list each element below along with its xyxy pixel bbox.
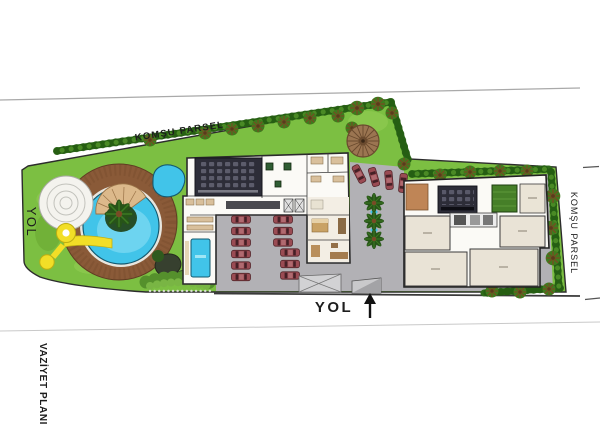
courtyard-palms [364,193,384,249]
round-terrace [39,176,93,230]
apartment-wing [308,197,349,262]
wardrobe [338,218,346,234]
parcel-dash-right-bottom [585,298,600,300]
building-cinema-room [438,186,477,213]
sofa [311,245,320,257]
label-vaziyet-plani: VAZİYET PLANI [37,343,50,425]
cinema-room [195,158,262,196]
turf-room [492,185,517,212]
label-komsu-parsel-right: KOMŞU PARSEL [569,192,579,274]
label-yol-left: YOL [24,207,39,238]
kitchen-counter [330,252,348,259]
kitchen-strip [450,213,497,227]
residential-building [404,175,549,287]
site-plan-canvas: KOMŞU PARSEL KOMŞU PARSEL YOL YOL VAZİYE… [0,0,600,429]
kids-pool [153,165,185,197]
parcel-dash-right-top [583,167,599,168]
gazebo [347,125,379,157]
sauna-room [406,184,428,210]
label-yol-bottom: YOL [315,299,353,316]
site-plan-drawing: KOMŞU PARSEL KOMŞU PARSEL YOL YOL VAZİYE… [0,0,600,429]
north-arrow-icon [364,293,376,318]
indoor-pool-room [185,239,210,277]
